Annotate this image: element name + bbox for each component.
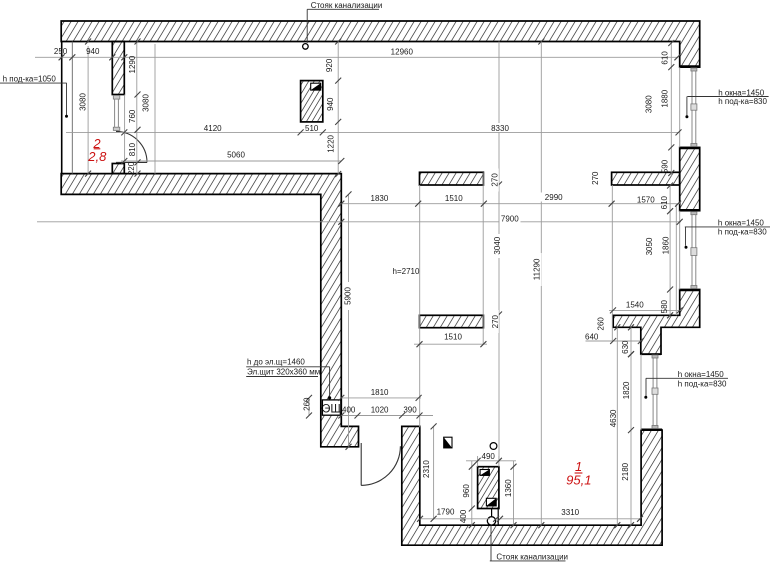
svg-text:7900: 7900 <box>501 215 519 224</box>
svg-text:510: 510 <box>305 124 319 133</box>
svg-text:3080: 3080 <box>141 94 150 112</box>
svg-text:3050: 3050 <box>645 237 654 255</box>
svg-text:810: 810 <box>128 142 137 156</box>
svg-text:h до эл.щ=1460: h до эл.щ=1460 <box>247 357 305 366</box>
svg-text:400: 400 <box>459 509 468 523</box>
svg-text:940: 940 <box>86 47 100 56</box>
svg-text:3080: 3080 <box>79 93 88 111</box>
svg-text:3040: 3040 <box>493 236 502 254</box>
svg-text:610: 610 <box>660 195 669 209</box>
svg-text:1540: 1540 <box>626 301 644 310</box>
svg-text:h окна=1450: h окна=1450 <box>718 219 765 228</box>
svg-text:1810: 1810 <box>371 388 389 397</box>
svg-text:250: 250 <box>54 47 68 56</box>
svg-text:Стояк канализации: Стояк канализации <box>496 553 568 562</box>
svg-text:580: 580 <box>660 299 669 313</box>
svg-text:1860: 1860 <box>661 236 670 254</box>
svg-text:270: 270 <box>491 314 500 328</box>
svg-text:390: 390 <box>403 406 417 415</box>
svg-text:1570: 1570 <box>637 196 655 205</box>
svg-text:1880: 1880 <box>661 89 670 107</box>
svg-text:1020: 1020 <box>371 406 389 415</box>
svg-text:260: 260 <box>597 317 606 331</box>
svg-text:270: 270 <box>591 171 600 185</box>
svg-text:11290: 11290 <box>533 258 542 280</box>
svg-text:920: 920 <box>325 58 334 72</box>
svg-text:h под-ка=830: h под-ка=830 <box>718 97 767 106</box>
svg-text:5060: 5060 <box>227 151 245 160</box>
svg-text:12960: 12960 <box>391 48 414 57</box>
svg-text:2,8: 2,8 <box>87 149 107 164</box>
svg-text:h под-ка=830: h под-ка=830 <box>678 379 727 388</box>
svg-text:Стояк канализации: Стояк канализации <box>311 1 383 10</box>
svg-text:590: 590 <box>661 159 670 173</box>
svg-text:3080: 3080 <box>645 95 654 113</box>
svg-text:260: 260 <box>303 397 312 411</box>
svg-text:940: 940 <box>326 97 335 111</box>
svg-text:4630: 4630 <box>609 409 618 427</box>
svg-text:490: 490 <box>482 452 496 461</box>
svg-text:1830: 1830 <box>371 194 389 203</box>
svg-text:270: 270 <box>491 173 500 187</box>
svg-text:1290: 1290 <box>128 55 137 73</box>
svg-text:640: 640 <box>585 333 599 342</box>
svg-text:760: 760 <box>128 109 137 123</box>
svg-text:1790: 1790 <box>437 508 455 517</box>
svg-text:h под-ка=830: h под-ка=830 <box>718 228 767 237</box>
svg-text:95,1: 95,1 <box>566 472 591 487</box>
svg-text:5900: 5900 <box>344 287 353 305</box>
svg-text:2310: 2310 <box>422 460 431 478</box>
svg-text:ЭЩ: ЭЩ <box>322 404 341 416</box>
svg-text:1820: 1820 <box>622 381 631 399</box>
svg-text:2990: 2990 <box>545 193 563 202</box>
svg-text:1220: 1220 <box>327 134 336 152</box>
svg-text:h окна=1450: h окна=1450 <box>678 370 725 379</box>
svg-text:Эл.щит 320x360 мм: Эл.щит 320x360 мм <box>247 368 320 377</box>
svg-text:630: 630 <box>621 340 630 354</box>
svg-text:400: 400 <box>342 406 356 415</box>
svg-text:3310: 3310 <box>561 508 579 517</box>
svg-text:220: 220 <box>127 161 136 175</box>
svg-text:1360: 1360 <box>504 479 513 497</box>
svg-text:1510: 1510 <box>445 194 463 203</box>
svg-text:2180: 2180 <box>621 462 630 480</box>
svg-text:4120: 4120 <box>204 124 222 133</box>
svg-text:8330: 8330 <box>491 124 509 133</box>
svg-text:1510: 1510 <box>444 333 462 342</box>
svg-text:h=2710: h=2710 <box>393 267 420 276</box>
svg-text:h под-ка=1050: h под-ка=1050 <box>3 75 57 84</box>
svg-text:960: 960 <box>462 484 471 498</box>
svg-text:610: 610 <box>661 51 670 65</box>
